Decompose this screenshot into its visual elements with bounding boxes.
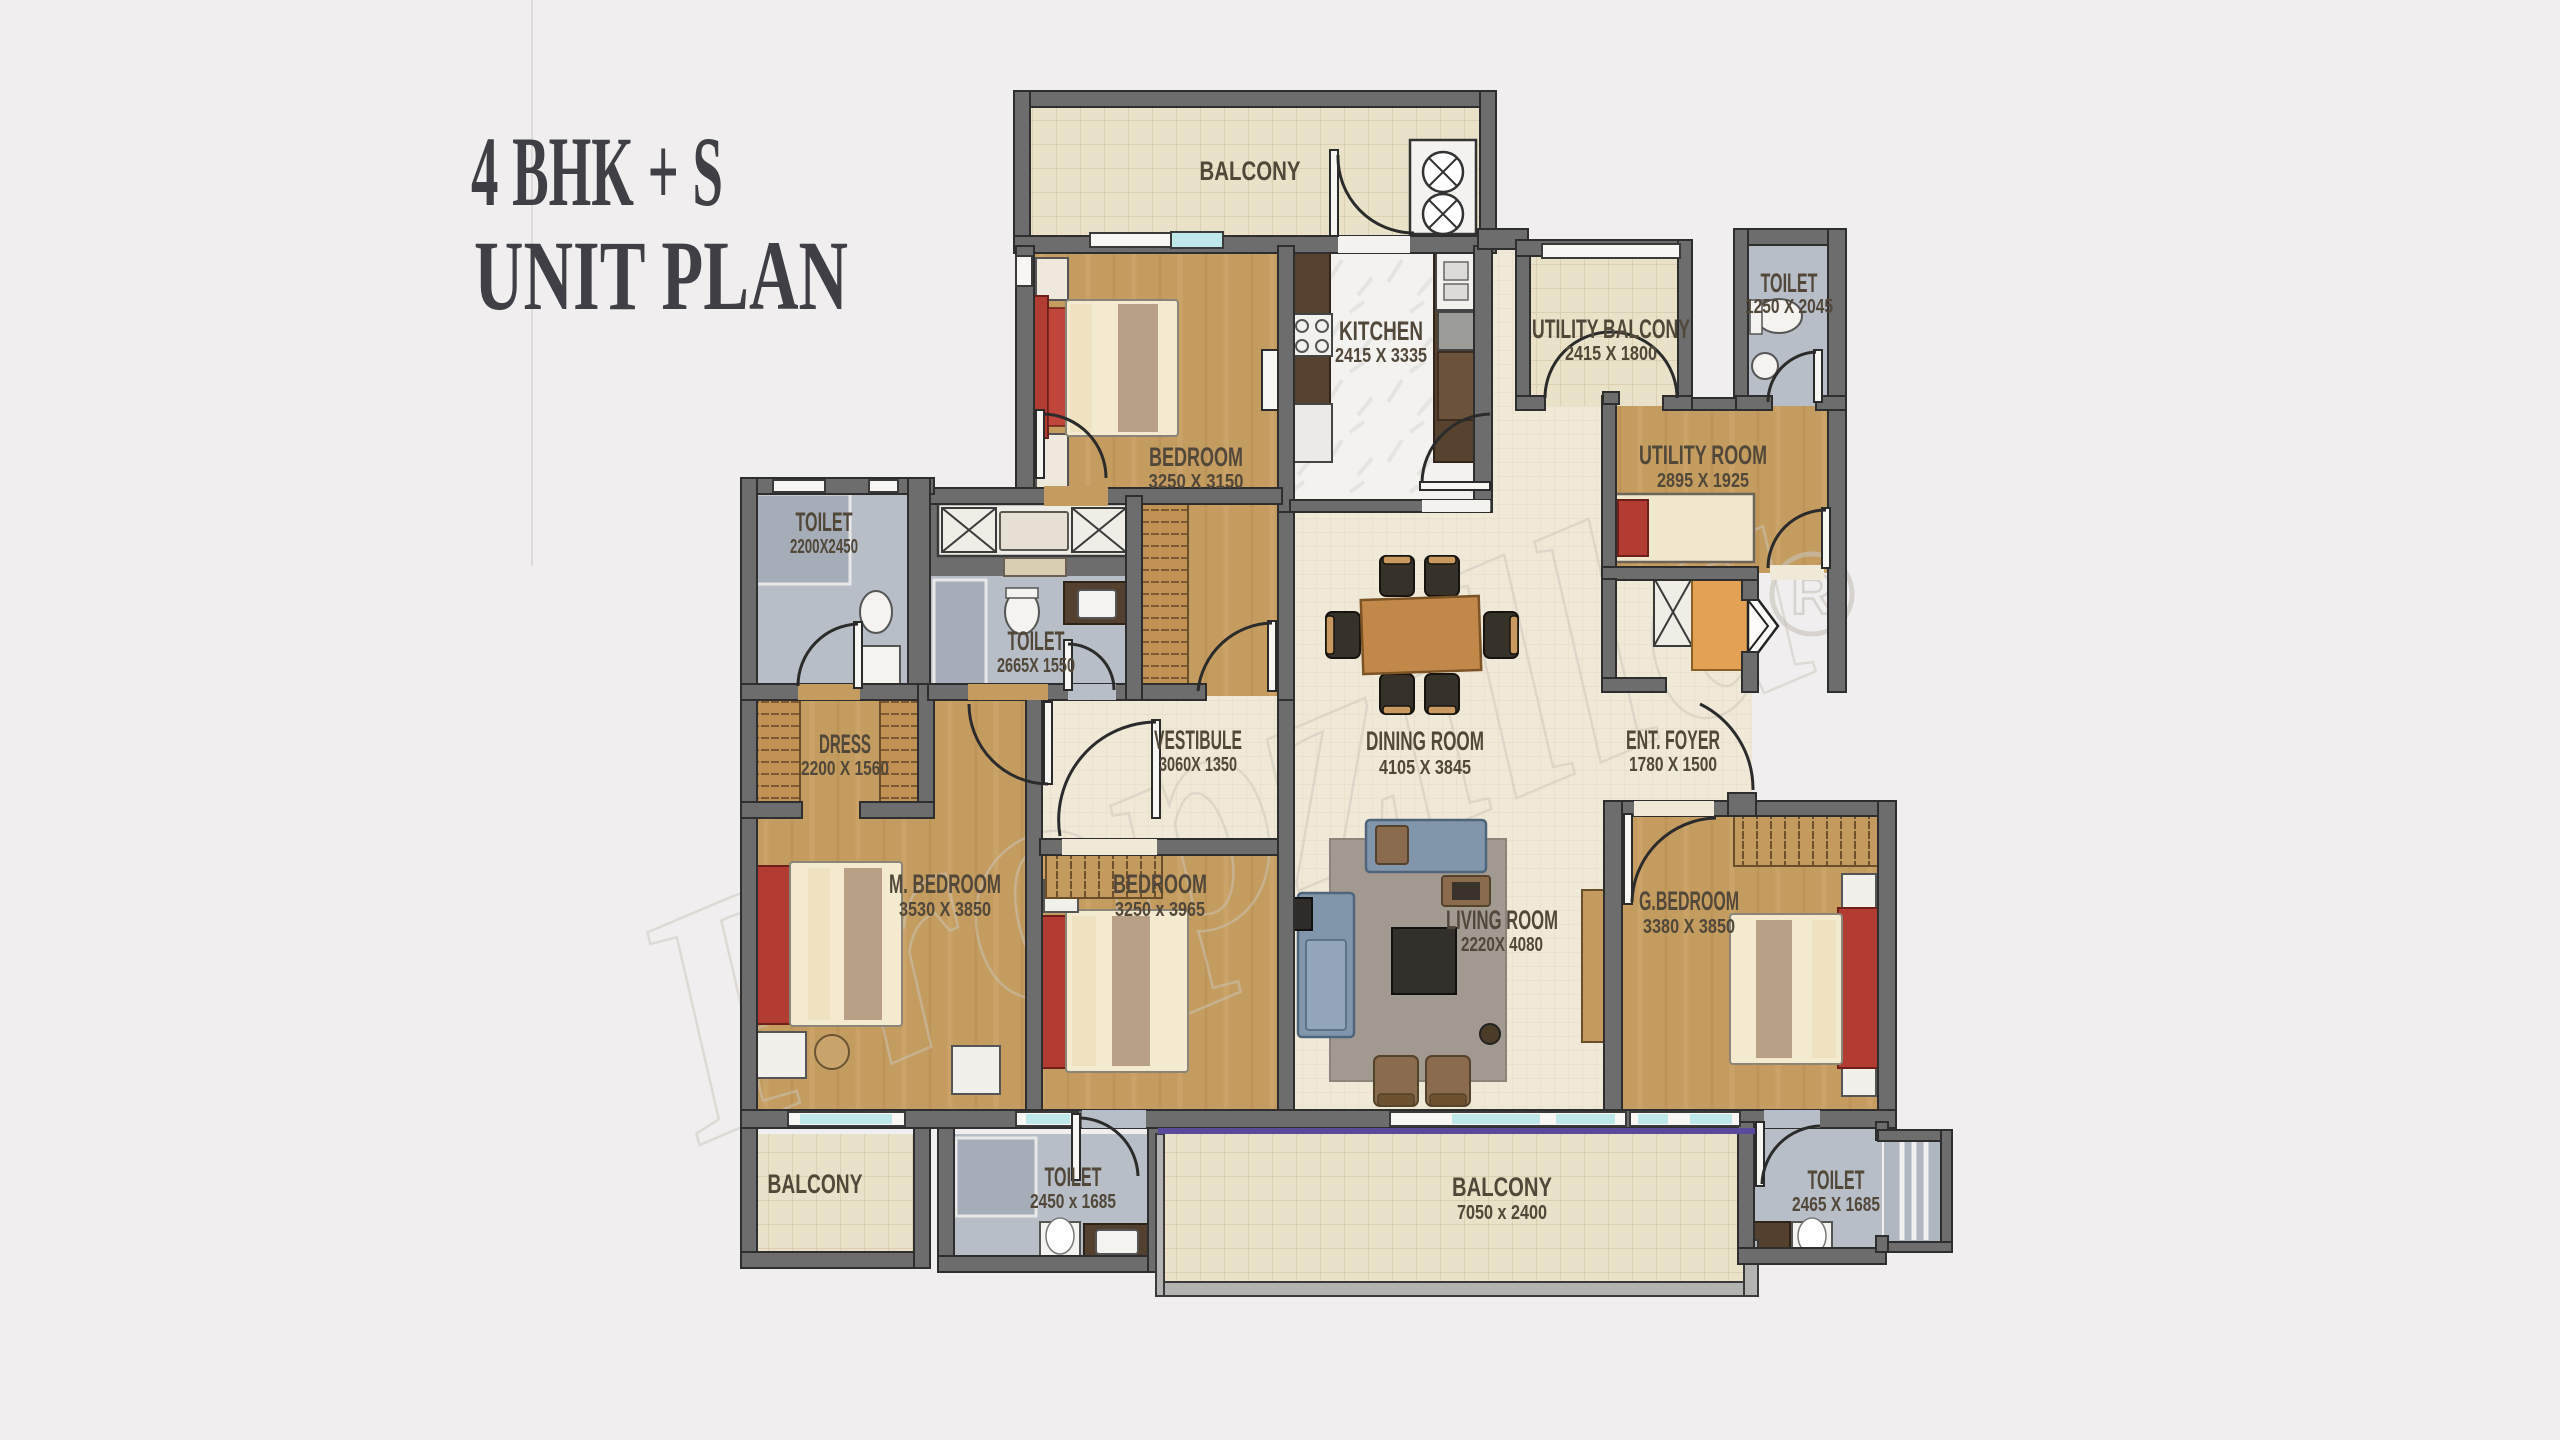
svg-text:TOILET: TOILET xyxy=(796,507,853,537)
svg-text:ENT. FOYER: ENT. FOYER xyxy=(1626,725,1720,755)
svg-text:BEDROOM: BEDROOM xyxy=(1113,869,1207,899)
svg-text:2450 x 1685: 2450 x 1685 xyxy=(1030,1191,1116,1213)
svg-text:KITCHEN: KITCHEN xyxy=(1339,316,1423,346)
svg-text:BALCONY: BALCONY xyxy=(768,1169,863,1199)
svg-text:2200X2450: 2200X2450 xyxy=(790,536,858,558)
svg-text:BEDROOM: BEDROOM xyxy=(1149,442,1243,472)
svg-text:BALCONY: BALCONY xyxy=(1452,1172,1552,1202)
svg-text:G.BEDROOM: G.BEDROOM xyxy=(1639,886,1739,916)
svg-text:3530 X 3850: 3530 X 3850 xyxy=(899,899,991,921)
svg-text:4 BHK + S: 4 BHK + S xyxy=(471,116,723,227)
svg-text:1250 X 2045: 1250 X 2045 xyxy=(1745,296,1833,318)
svg-text:DRESS: DRESS xyxy=(819,729,871,759)
svg-text:2415 X 1800: 2415 X 1800 xyxy=(1565,343,1657,365)
svg-text:M. BEDROOM: M. BEDROOM xyxy=(889,869,1001,899)
svg-text:3250 X 3150: 3250 X 3150 xyxy=(1149,471,1244,493)
svg-text:1780 X 1500: 1780 X 1500 xyxy=(1629,754,1717,776)
svg-text:TOILET: TOILET xyxy=(1808,1165,1865,1195)
svg-text:UNIT PLAN: UNIT PLAN xyxy=(474,220,848,331)
svg-text:2415 X 3335: 2415 X 3335 xyxy=(1335,345,1427,367)
svg-text:TOILET: TOILET xyxy=(1045,1162,1102,1192)
svg-text:UTILITY ROOM: UTILITY ROOM xyxy=(1639,440,1767,470)
svg-text:LIVING ROOM: LIVING ROOM xyxy=(1446,905,1558,935)
svg-text:7050 x 2400: 7050 x 2400 xyxy=(1457,1202,1547,1224)
svg-text:DINING ROOM: DINING ROOM xyxy=(1366,726,1484,756)
svg-text:VESTIBULE: VESTIBULE xyxy=(1154,725,1242,755)
svg-text:2200 X 1560: 2200 X 1560 xyxy=(801,758,889,780)
svg-text:2895 X 1925: 2895 X 1925 xyxy=(1657,470,1749,492)
svg-text:3250 x 3965: 3250 x 3965 xyxy=(1115,899,1205,921)
svg-text:TOILET: TOILET xyxy=(1761,268,1818,298)
svg-text:2465 X 1685: 2465 X 1685 xyxy=(1792,1194,1880,1216)
svg-text:TOILET: TOILET xyxy=(1008,626,1065,656)
svg-text:4105 X 3845: 4105 X 3845 xyxy=(1379,757,1471,779)
svg-text:3060X 1350: 3060X 1350 xyxy=(1159,754,1237,776)
svg-text:2665X 1550: 2665X 1550 xyxy=(997,655,1075,677)
svg-text:BALCONY: BALCONY xyxy=(1200,156,1301,186)
svg-text:3380 X 3850: 3380 X 3850 xyxy=(1643,916,1735,938)
svg-text:UTILITY BALCONY: UTILITY BALCONY xyxy=(1532,314,1690,344)
svg-text:2220X 4080: 2220X 4080 xyxy=(1461,934,1543,956)
